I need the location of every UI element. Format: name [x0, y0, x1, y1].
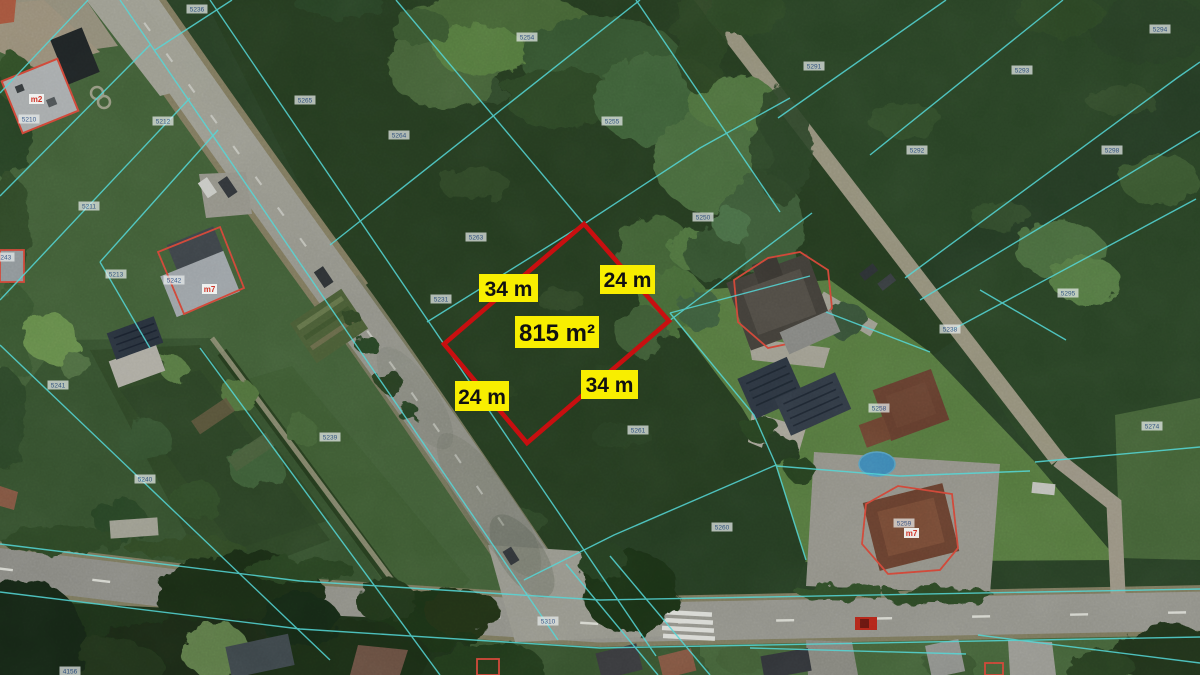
svg-text:5212: 5212	[156, 119, 171, 126]
svg-text:5255: 5255	[605, 119, 620, 126]
svg-text:5213: 5213	[109, 272, 124, 279]
svg-text:5240: 5240	[138, 477, 153, 484]
svg-text:34 m: 34 m	[485, 278, 533, 301]
svg-text:815 m²: 815 m²	[519, 320, 595, 347]
svg-text:5260: 5260	[715, 525, 730, 532]
svg-text:5210: 5210	[22, 117, 37, 124]
svg-text:4156: 4156	[63, 669, 78, 675]
svg-text:5261: 5261	[631, 428, 646, 435]
svg-text:5254: 5254	[520, 35, 535, 42]
svg-text:5250: 5250	[696, 215, 711, 222]
svg-text:5242: 5242	[167, 278, 182, 285]
svg-text:m2: m2	[31, 95, 43, 104]
svg-text:5295: 5295	[1061, 291, 1076, 298]
svg-text:24 m: 24 m	[458, 386, 506, 409]
svg-text:m7: m7	[906, 529, 918, 538]
svg-text:5241: 5241	[51, 383, 66, 390]
svg-text:5238: 5238	[943, 327, 958, 334]
svg-text:5298: 5298	[1105, 148, 1120, 155]
svg-text:5293: 5293	[1015, 68, 1030, 75]
svg-text:m7: m7	[204, 285, 216, 294]
svg-text:5243: 5243	[0, 255, 12, 262]
svg-text:5291: 5291	[807, 64, 822, 71]
svg-text:5265: 5265	[298, 98, 313, 105]
svg-text:5239: 5239	[323, 435, 338, 442]
svg-text:5294: 5294	[1153, 27, 1168, 34]
svg-text:5264: 5264	[392, 133, 407, 140]
svg-text:24 m: 24 m	[604, 269, 652, 292]
svg-text:5274: 5274	[1145, 424, 1160, 431]
svg-text:5258: 5258	[872, 406, 887, 413]
svg-text:5231: 5231	[434, 297, 449, 304]
svg-text:5292: 5292	[910, 148, 925, 155]
svg-text:5236: 5236	[190, 7, 205, 14]
svg-text:34 m: 34 m	[586, 374, 634, 397]
svg-text:5310: 5310	[541, 619, 556, 626]
svg-text:5259: 5259	[897, 521, 912, 528]
svg-text:5211: 5211	[82, 204, 96, 211]
svg-text:5263: 5263	[469, 235, 484, 242]
